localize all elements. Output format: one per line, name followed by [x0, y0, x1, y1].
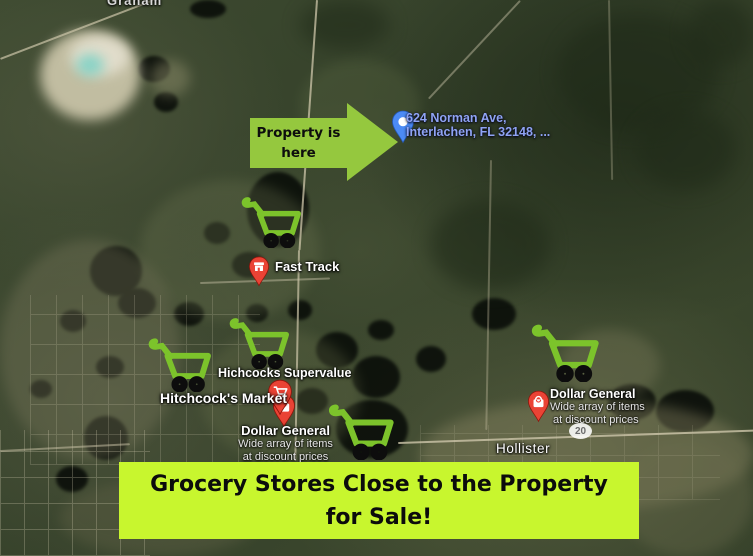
- address-line-1: 624 Norman Ave,: [406, 111, 550, 125]
- town-label-hollister: Hollister: [496, 441, 550, 456]
- shopping-cart-icon: [148, 334, 213, 392]
- grocery-cart-marker: [241, 193, 303, 253]
- arrow-label-line2: here: [281, 143, 316, 163]
- poi-label-dollar-general-west: Dollar General Wide array of items at di…: [213, 423, 358, 463]
- poi-label-dollar-general-east: Dollar General Wide array of items at di…: [550, 387, 662, 426]
- route-20-shield: 20: [569, 423, 592, 439]
- poi-label-hichcocks-supervalue: Hichcocks Supervalue: [218, 366, 351, 380]
- arrow-head: [347, 103, 398, 181]
- banner: Grocery Stores Close to the Property for…: [119, 462, 639, 539]
- grocery-cart-marker: [531, 320, 601, 387]
- poi-name: Dollar General: [241, 423, 330, 438]
- poi-name: Dollar General: [550, 387, 635, 401]
- poi-subtitle-line2: at discount prices: [550, 414, 639, 427]
- map-screenshot[interactable]: Graham 624 Norman Ave, Interlachen, FL 3…: [0, 0, 753, 556]
- property-address-label: 624 Norman Ave, Interlachen, FL 32148, .…: [406, 111, 550, 139]
- shopping-cart-icon: [531, 320, 601, 382]
- poi-label-fast-track: Fast Track: [275, 259, 339, 274]
- grocery-cart-marker: [148, 334, 213, 397]
- dollar-general-east-pin-icon[interactable]: [527, 390, 550, 428]
- place-label-graham: Graham: [107, 0, 162, 8]
- poi-subtitle-line1: Wide array of items: [550, 401, 645, 414]
- arrow-body: Property is here: [250, 118, 347, 168]
- shopping-cart-icon: [241, 193, 303, 248]
- arrow-label-line1: Property is: [257, 123, 341, 143]
- banner-line2: for Sale!: [326, 501, 432, 534]
- fast-track-pin-icon[interactable]: [248, 256, 270, 292]
- poi-subtitle-line1: Wide array of items: [238, 438, 333, 451]
- property-arrow-callout: Property is here: [250, 103, 400, 181]
- shopping-cart-icon: [229, 314, 291, 369]
- grocery-cart-marker: [229, 314, 291, 374]
- address-line-2: Interlachen, FL 32148, ...: [406, 125, 550, 139]
- banner-line1: Grocery Stores Close to the Property: [150, 468, 608, 501]
- poi-label-hitchcocks-market: Hitchcock's Market: [160, 390, 287, 406]
